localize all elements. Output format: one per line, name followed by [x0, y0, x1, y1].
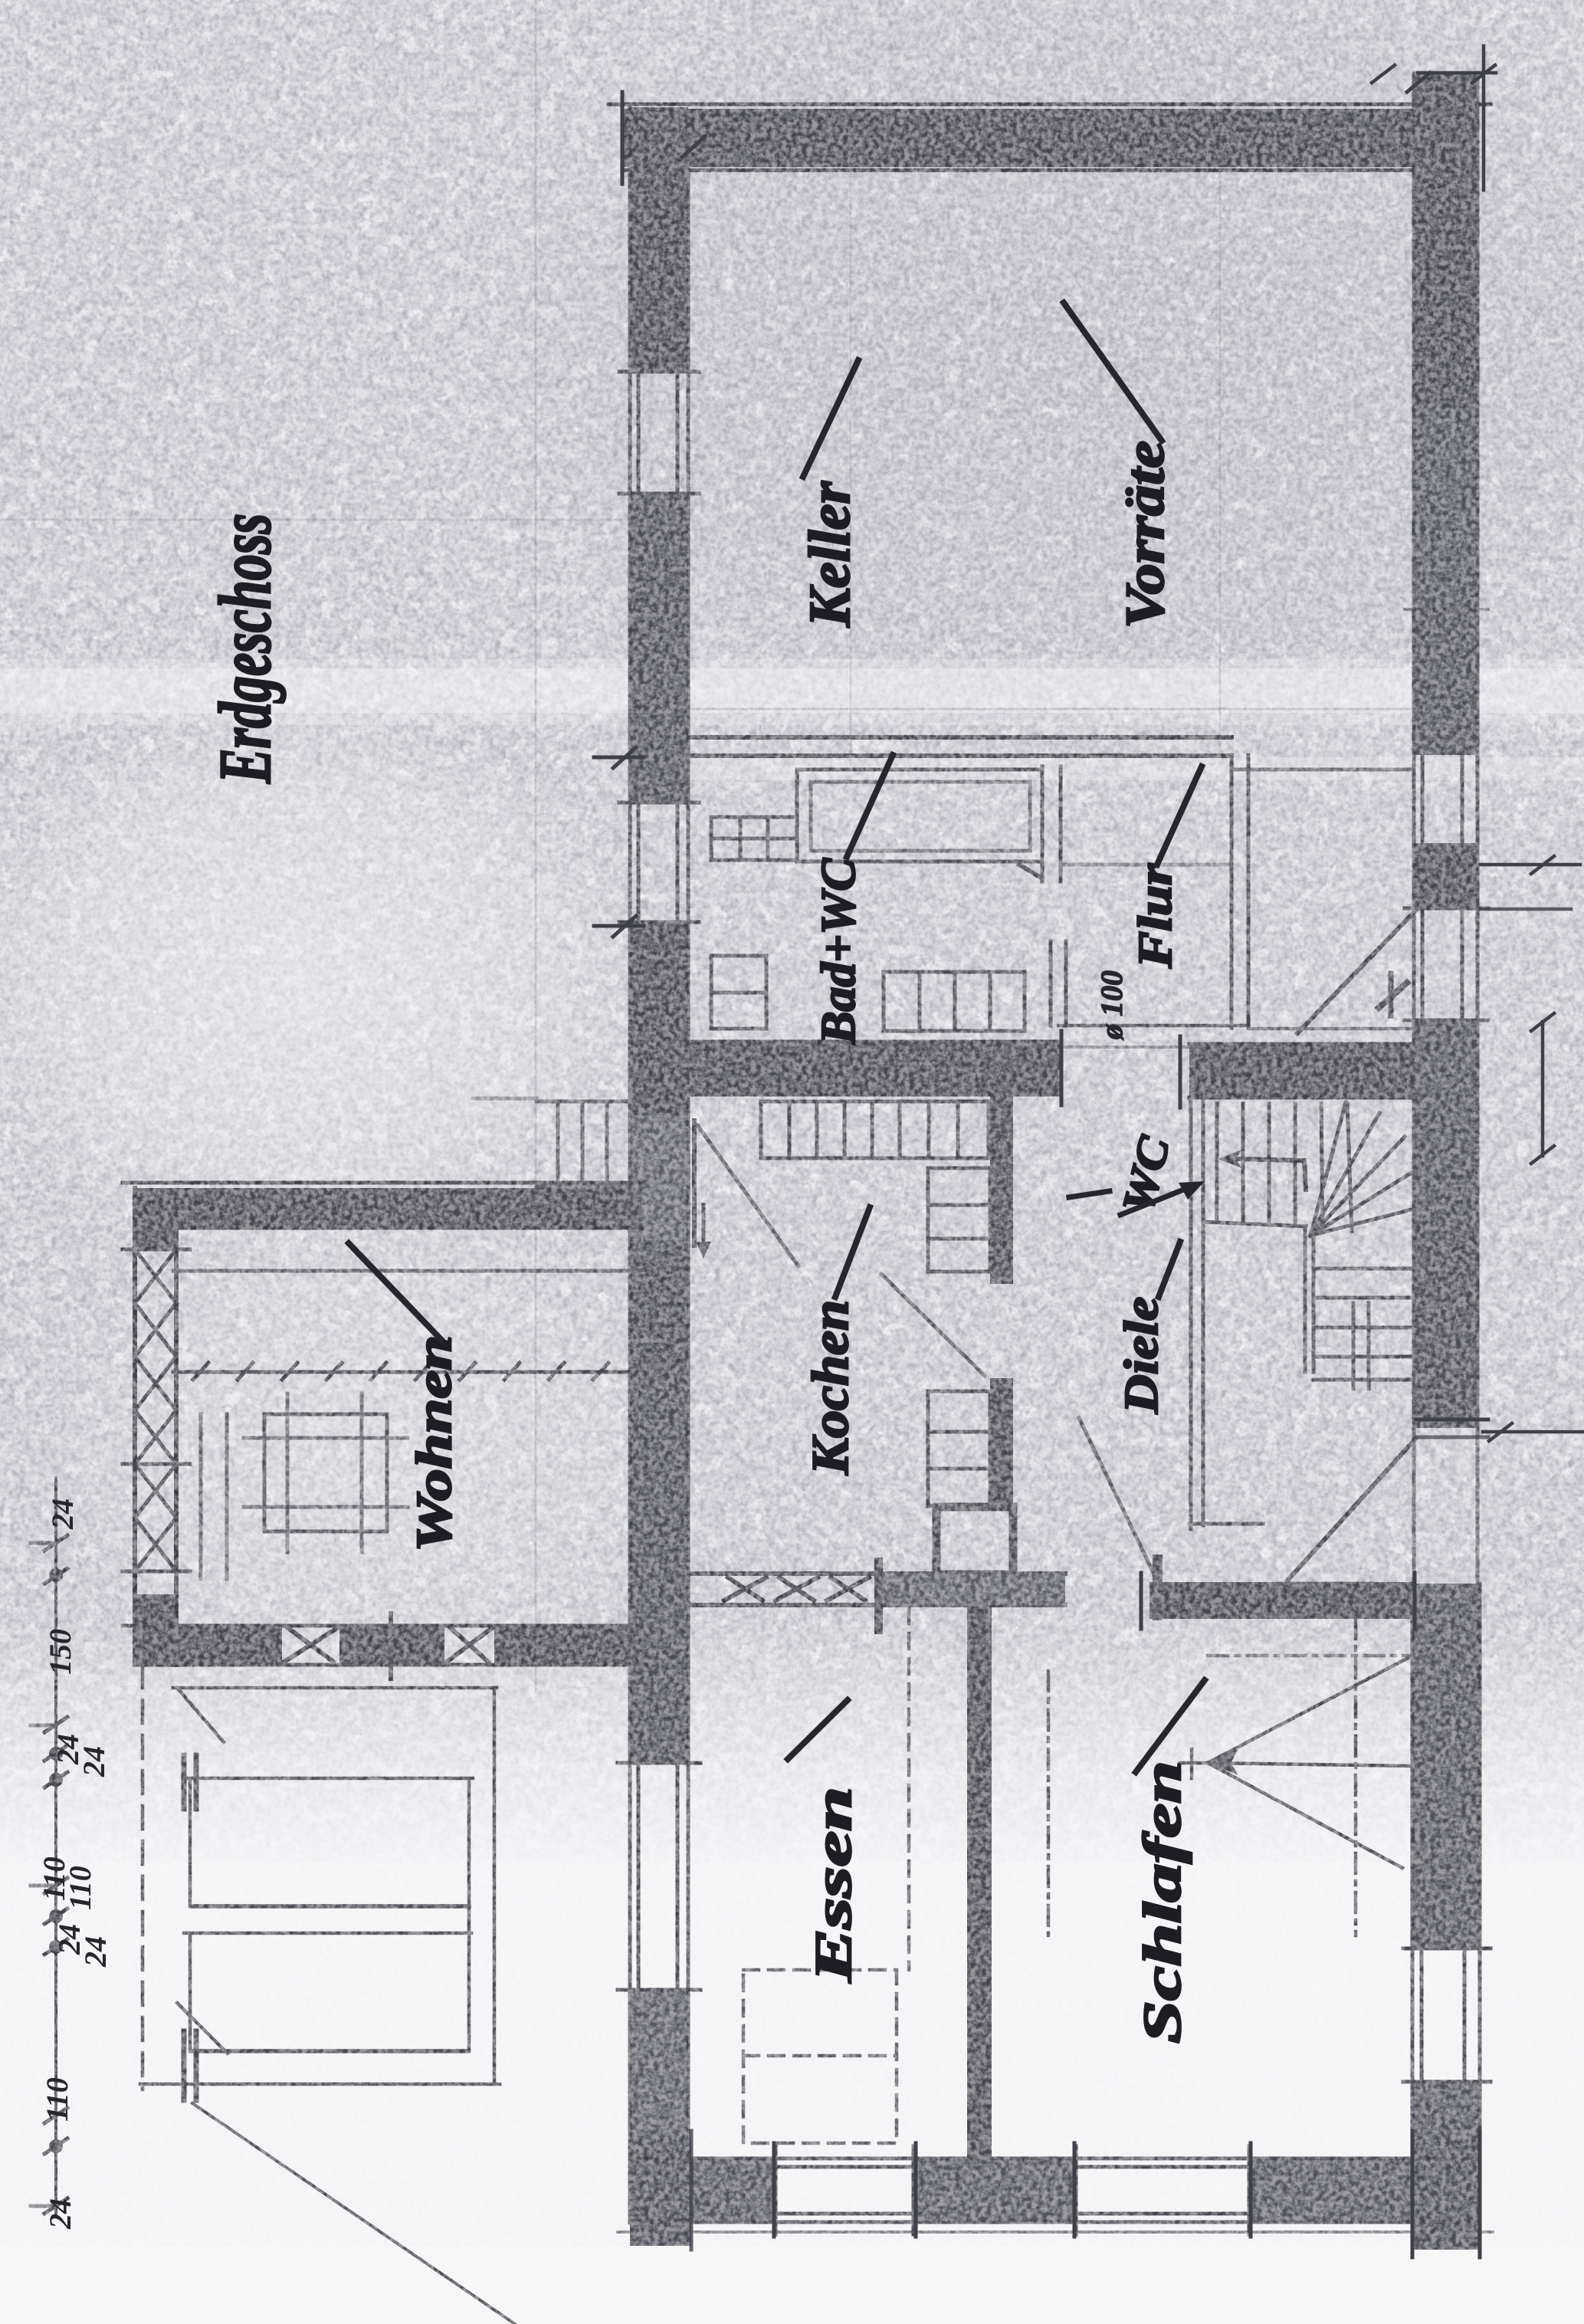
- svg-text:Wohnen: Wohnen: [406, 1335, 462, 1552]
- svg-text:Bad+WC: Bad+WC: [811, 858, 865, 1045]
- svg-text:Essen: Essen: [804, 1787, 862, 1984]
- svg-text:24: 24: [45, 1498, 80, 1530]
- svg-text:ø 100: ø 100: [1094, 970, 1129, 1040]
- svg-text:Keller: Keller: [798, 481, 862, 628]
- svg-text:110: 110: [40, 2077, 74, 2122]
- svg-text:24: 24: [43, 2198, 77, 2230]
- svg-text:Vorräte: Vorräte: [1114, 441, 1176, 629]
- svg-text:Kochen: Kochen: [801, 1300, 859, 1475]
- svg-text:Diele: Diele: [1116, 1297, 1168, 1414]
- svg-text:Flur: Flur: [1130, 863, 1182, 969]
- svg-text:Erdgeschoss: Erdgeschoss: [204, 514, 286, 784]
- svg-text:24: 24: [78, 1936, 113, 1968]
- svg-text:Schlafen: Schlafen: [1133, 1761, 1192, 2043]
- svg-text:110: 110: [63, 1866, 97, 1910]
- svg-text:24: 24: [77, 1746, 111, 1777]
- svg-text:150: 150: [43, 1629, 77, 1675]
